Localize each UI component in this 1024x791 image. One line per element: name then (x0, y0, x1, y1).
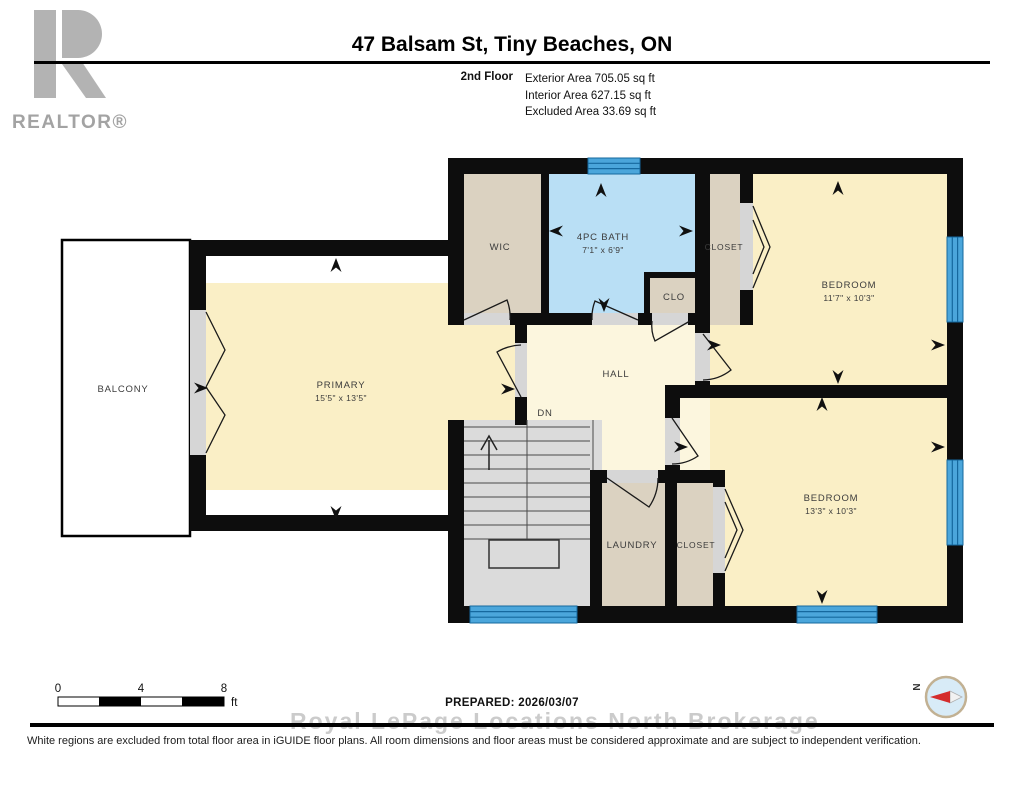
brokerage-watermark: Royal LePage Locations North Brokerage (290, 708, 820, 735)
stairwell-area (448, 420, 602, 623)
room-label-bath: 4PC BATH (577, 232, 629, 243)
room-dim-bath: 7'1" x 6'9" (582, 245, 624, 255)
room-label-hall: HALL (603, 369, 630, 380)
excluded-strip-top (206, 256, 448, 283)
scale-start-label: 0 (55, 683, 61, 695)
room-label-bedroom-upper: BEDROOM (822, 280, 877, 291)
room-label-primary: PRIMARY (317, 380, 366, 391)
room-dim-bedroom-upper: 11'7" x 10'3" (823, 293, 874, 303)
scale-mid-label: 4 (138, 683, 145, 695)
room-dim-primary: 15'5" x 13'5" (315, 393, 367, 403)
compass-north-label: N (912, 683, 923, 690)
room-label-wic: WIC (490, 242, 511, 253)
window-bedroom-lower-right (947, 460, 963, 545)
floor-plan: BALCONY PRIMARY 15'5" x 13'5" WIC 4PC BA… (0, 0, 1024, 791)
window-bath-top (588, 158, 640, 174)
room-label-laundry: LAUNDRY (607, 540, 658, 551)
room-label-closet-upper: CLOSET (705, 242, 744, 252)
window-bedroom-lower-bottom (797, 606, 877, 623)
excluded-strip-bottom (206, 490, 448, 515)
room-bedroom-upper (740, 158, 963, 398)
room-dim-bedroom-lower: 13'3" x 10'3" (805, 506, 857, 516)
footer-divider (30, 723, 994, 727)
room-label-clo: CLO (663, 292, 685, 303)
window-stairwell-bottom (470, 606, 577, 623)
stairs-dn-label: DN (537, 408, 552, 419)
room-label-bedroom-lower: BEDROOM (804, 493, 859, 504)
room-label-balcony: BALCONY (97, 384, 148, 395)
window-bedroom-upper-right (947, 237, 963, 322)
scale-end-label: 8 (221, 683, 227, 695)
room-label-closet-lower: CLOSET (677, 540, 716, 550)
disclaimer-text: White regions are excluded from total fl… (27, 735, 1007, 747)
